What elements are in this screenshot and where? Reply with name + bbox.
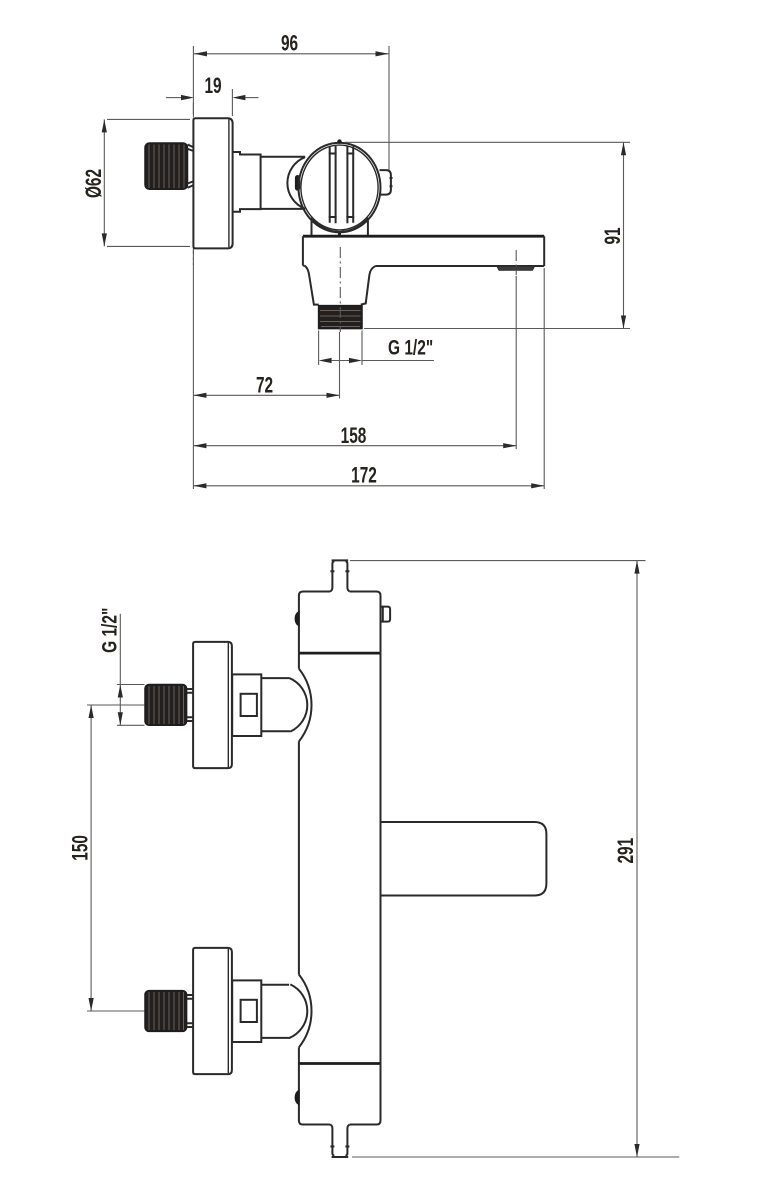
svg-text:150: 150 [69, 835, 93, 861]
svg-text:G 1/2": G 1/2" [388, 335, 433, 359]
svg-text:91: 91 [601, 227, 625, 244]
svg-text:172: 172 [351, 464, 377, 488]
svg-text:72: 72 [256, 374, 273, 398]
svg-text:96: 96 [281, 32, 298, 56]
svg-text:19: 19 [204, 75, 221, 99]
svg-text:G 1/2": G 1/2" [97, 608, 121, 653]
svg-text:Ø62: Ø62 [82, 169, 106, 198]
svg-text:158: 158 [341, 424, 367, 448]
svg-text:291: 291 [614, 838, 638, 864]
